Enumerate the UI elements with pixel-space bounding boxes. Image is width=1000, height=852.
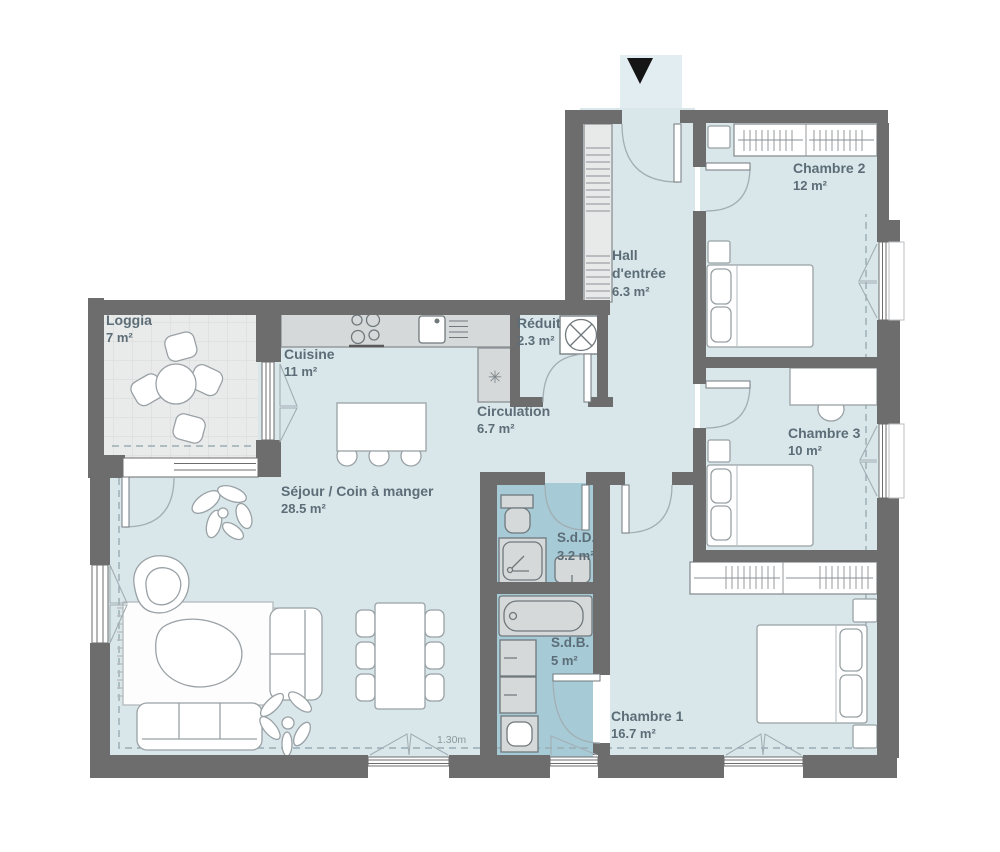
- double-bed: [707, 465, 813, 546]
- room-name: Chambre 1: [611, 707, 683, 725]
- room-label-chambre3: Chambre 3 10 m²: [788, 424, 860, 460]
- window-sill: [889, 424, 904, 498]
- sink: [419, 316, 445, 343]
- bathtub: [499, 596, 592, 636]
- room-area: 3.2 m²: [557, 547, 595, 564]
- room-label-sdd: S.d.D. 3.2 m²: [557, 529, 595, 564]
- room-label-reduit: Réduit 2.3 m²: [517, 314, 581, 350]
- room-area: 2.3 m²: [517, 332, 581, 349]
- room-area: 6.7 m²: [477, 420, 550, 437]
- room-name: Cuisine: [284, 345, 335, 363]
- sofa-right: [270, 608, 322, 700]
- height-annotation: 1.30m: [437, 734, 466, 746]
- appliance-column: ✳: [478, 348, 512, 402]
- nightstand: [853, 599, 877, 622]
- nightstand: [708, 440, 730, 462]
- round-table: [156, 364, 196, 404]
- window: [724, 757, 803, 766]
- toilet: [501, 495, 533, 533]
- armchair: [134, 556, 189, 613]
- room-name: Chambre 3: [788, 424, 860, 442]
- window: [550, 757, 598, 766]
- room-area: 10 m²: [788, 442, 860, 459]
- room-label-chambre2: Chambre 2 12 m²: [793, 159, 865, 195]
- window: [879, 424, 904, 498]
- room-name: S.d.B.: [551, 634, 589, 652]
- wardrobe: [690, 562, 877, 594]
- loggia-glazing: [123, 458, 258, 477]
- room-area: 7 m²: [106, 329, 152, 346]
- closet: [734, 124, 877, 156]
- room-label-cuisine: Cuisine 11 m²: [284, 345, 335, 381]
- room-name: Chambre 2: [793, 159, 865, 177]
- toilet: [501, 716, 538, 752]
- room-name: S.d.D.: [557, 529, 595, 547]
- window: [368, 757, 449, 766]
- room-label-hall: Hall d'entrée 6.3 m²: [612, 246, 684, 300]
- kitchen-island: [337, 403, 426, 466]
- washer-dryer: [500, 640, 536, 713]
- room-area: 16.7 m²: [611, 725, 683, 742]
- window: [92, 565, 108, 643]
- room-label-loggia: Loggia 7 m²: [106, 311, 152, 347]
- dining-table-set: [356, 603, 444, 709]
- double-bed: [707, 265, 813, 347]
- room-name: Loggia: [106, 311, 152, 329]
- window: [262, 362, 274, 440]
- room-label-chambre1: Chambre 1 16.7 m²: [611, 707, 683, 743]
- nightstand: [853, 725, 877, 748]
- room-name: Hall d'entrée: [612, 246, 684, 283]
- room-name: Circulation: [477, 402, 550, 420]
- double-bed: [757, 625, 867, 723]
- room-label-sejour: Séjour / Coin à manger 28.5 m²: [281, 482, 433, 518]
- room-name: Séjour / Coin à manger: [281, 482, 433, 500]
- sofa-bottom: [137, 703, 262, 750]
- appliance-icon: ✳: [488, 368, 502, 387]
- room-label-circulation: Circulation 6.7 m²: [477, 402, 550, 438]
- room-area: 12 m²: [793, 177, 865, 194]
- window: [879, 242, 904, 320]
- kitchen-counter: [281, 313, 512, 347]
- room-area: 11 m²: [284, 363, 335, 380]
- room-area: 5 m²: [551, 652, 589, 669]
- room-area: 28.5 m²: [281, 500, 433, 517]
- nightstand: [708, 241, 730, 263]
- window-sill: [889, 242, 904, 320]
- room-label-sdb: S.d.B. 5 m²: [551, 634, 589, 669]
- room-area: 6.3 m²: [612, 283, 684, 300]
- entry-path: [620, 55, 682, 112]
- hall-shelves: [584, 124, 612, 302]
- shower: [499, 538, 546, 584]
- desk: [790, 368, 877, 405]
- room-name: Réduit: [517, 314, 581, 332]
